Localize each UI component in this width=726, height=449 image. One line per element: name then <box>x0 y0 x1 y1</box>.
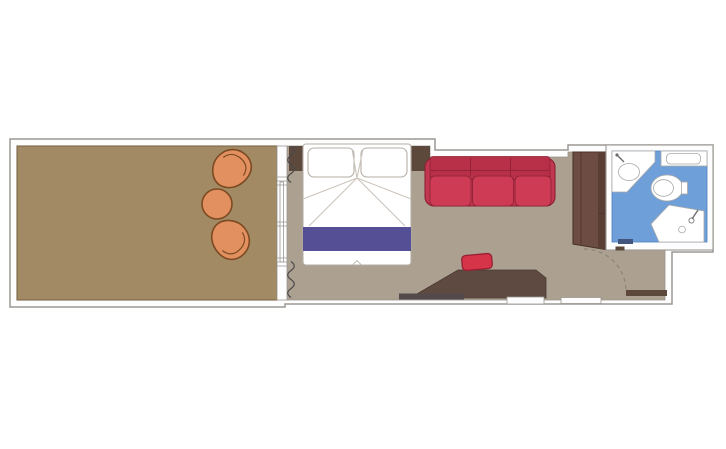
bathroom-counter <box>661 151 707 166</box>
screenshot-root <box>0 0 726 449</box>
wall-opening-segment-right <box>561 298 601 304</box>
entry-door <box>626 290 667 296</box>
faucet-knob-icon <box>615 153 618 156</box>
sofa-cushion-right <box>515 176 551 206</box>
sink-basin <box>619 164 640 181</box>
balcony-table <box>202 189 232 219</box>
stool <box>461 253 492 271</box>
counter-basin <box>667 154 701 165</box>
balcony-divider-wall <box>277 146 287 300</box>
shelf-bar <box>399 294 464 300</box>
toilet-bowl <box>651 175 683 201</box>
door-threshold <box>616 247 625 251</box>
wardrobe <box>573 152 609 250</box>
floor-plan <box>0 0 726 449</box>
pillow-right <box>361 148 407 177</box>
pillow-left <box>308 148 354 177</box>
toilet-flush <box>682 182 688 194</box>
sofa-cushion-middle <box>473 176 514 206</box>
wall-opening-segment-left <box>507 297 544 304</box>
stool-seat <box>461 253 492 271</box>
bed-runner <box>303 227 411 251</box>
double-bed <box>303 144 411 265</box>
sofa-cushion-left <box>430 176 471 206</box>
bathroom-door <box>618 239 633 244</box>
sofa <box>425 157 555 207</box>
